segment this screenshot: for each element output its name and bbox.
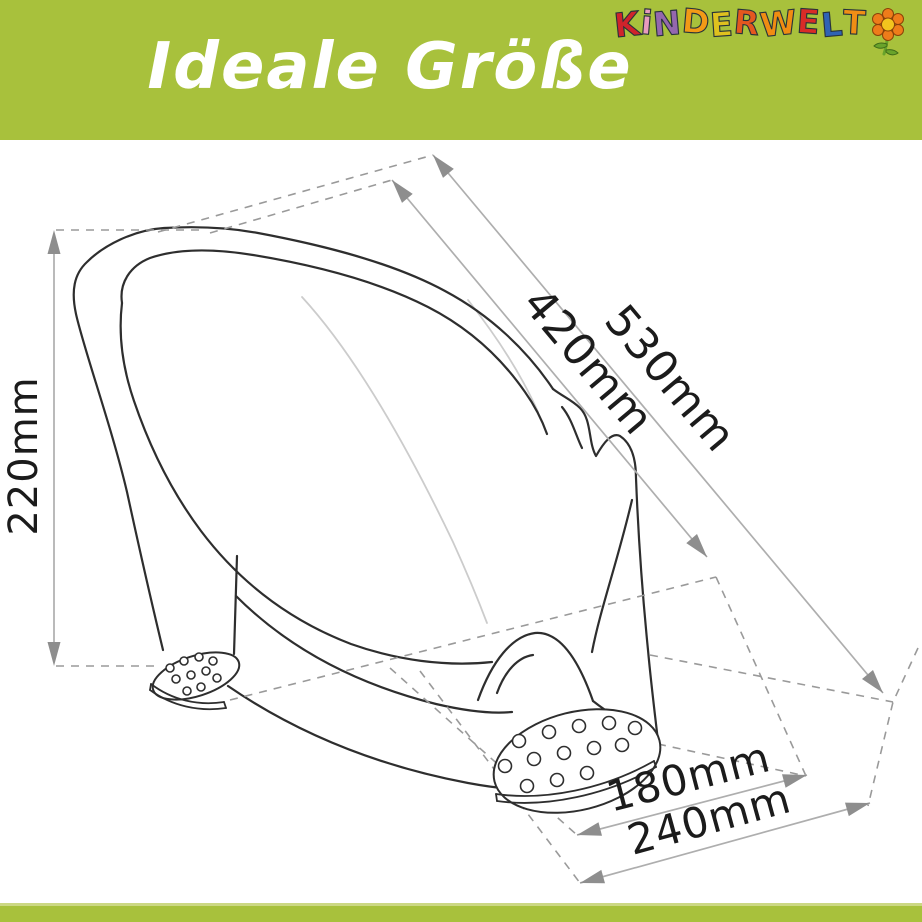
ext-inner-length-top [210, 180, 392, 233]
logo-letter: D [680, 4, 710, 39]
logo-letter: W [758, 5, 798, 42]
crotch-post [478, 633, 593, 701]
extension-dashes [56, 155, 918, 883]
arrow-base-width-left [580, 870, 605, 883]
footer-band [0, 903, 922, 922]
bowl-front-edge [236, 596, 512, 713]
arrow-height-bottom [48, 642, 61, 666]
ext-total-length-top [158, 155, 433, 232]
seat-inner-rim-top [122, 250, 547, 434]
kinderwelt-logo: KiNDERWELT [614, 6, 908, 58]
arrow-inner-length-bottom [686, 534, 707, 557]
seat-armrest-wing [553, 389, 658, 741]
arrow-total-length-bottom [862, 670, 883, 693]
seat-crease-line [302, 297, 487, 623]
logo-letter: T [842, 5, 866, 39]
dimension-labels: 220mm 420mm 530mm 180mm 240mm [1, 278, 796, 864]
arrow-inner-length-top [392, 180, 413, 203]
logo-letter: N [652, 6, 682, 41]
page: 220mm 420mm 530mm 180mm 240mm Ideale Grö… [0, 0, 922, 922]
crotch-post-inner-line [497, 655, 533, 693]
seat-inner-rim-sweep [121, 303, 492, 664]
logo-letter: E [709, 7, 734, 41]
ext-total-corner [868, 648, 918, 806]
dim-label-height: 220mm [1, 376, 47, 535]
bottom-silhouette [228, 686, 535, 790]
seat-pan-right-edge [592, 500, 632, 652]
header-band: Ideale Größe KiNDERWELT [0, 0, 922, 140]
dim-line-total-length [433, 155, 883, 693]
flower-icon [868, 8, 908, 58]
logo-letter: K [613, 7, 642, 42]
arrow-height-top [48, 230, 61, 254]
logo-letter: E [796, 4, 821, 38]
seat-notch-inner-line [562, 407, 582, 448]
arrow-total-length-top [433, 155, 454, 178]
flower-center [882, 18, 895, 31]
rear-pad-oval [147, 643, 245, 709]
kinderwelt-letters: KiNDERWELT [614, 6, 866, 39]
seat-outer-outline [74, 227, 553, 650]
arrow-front-width-left [577, 822, 602, 836]
ext-rear-floor [230, 577, 716, 700]
logo-letter: R [732, 5, 760, 40]
arrow-base-width-right [845, 803, 870, 817]
logo-letter: L [820, 7, 844, 42]
